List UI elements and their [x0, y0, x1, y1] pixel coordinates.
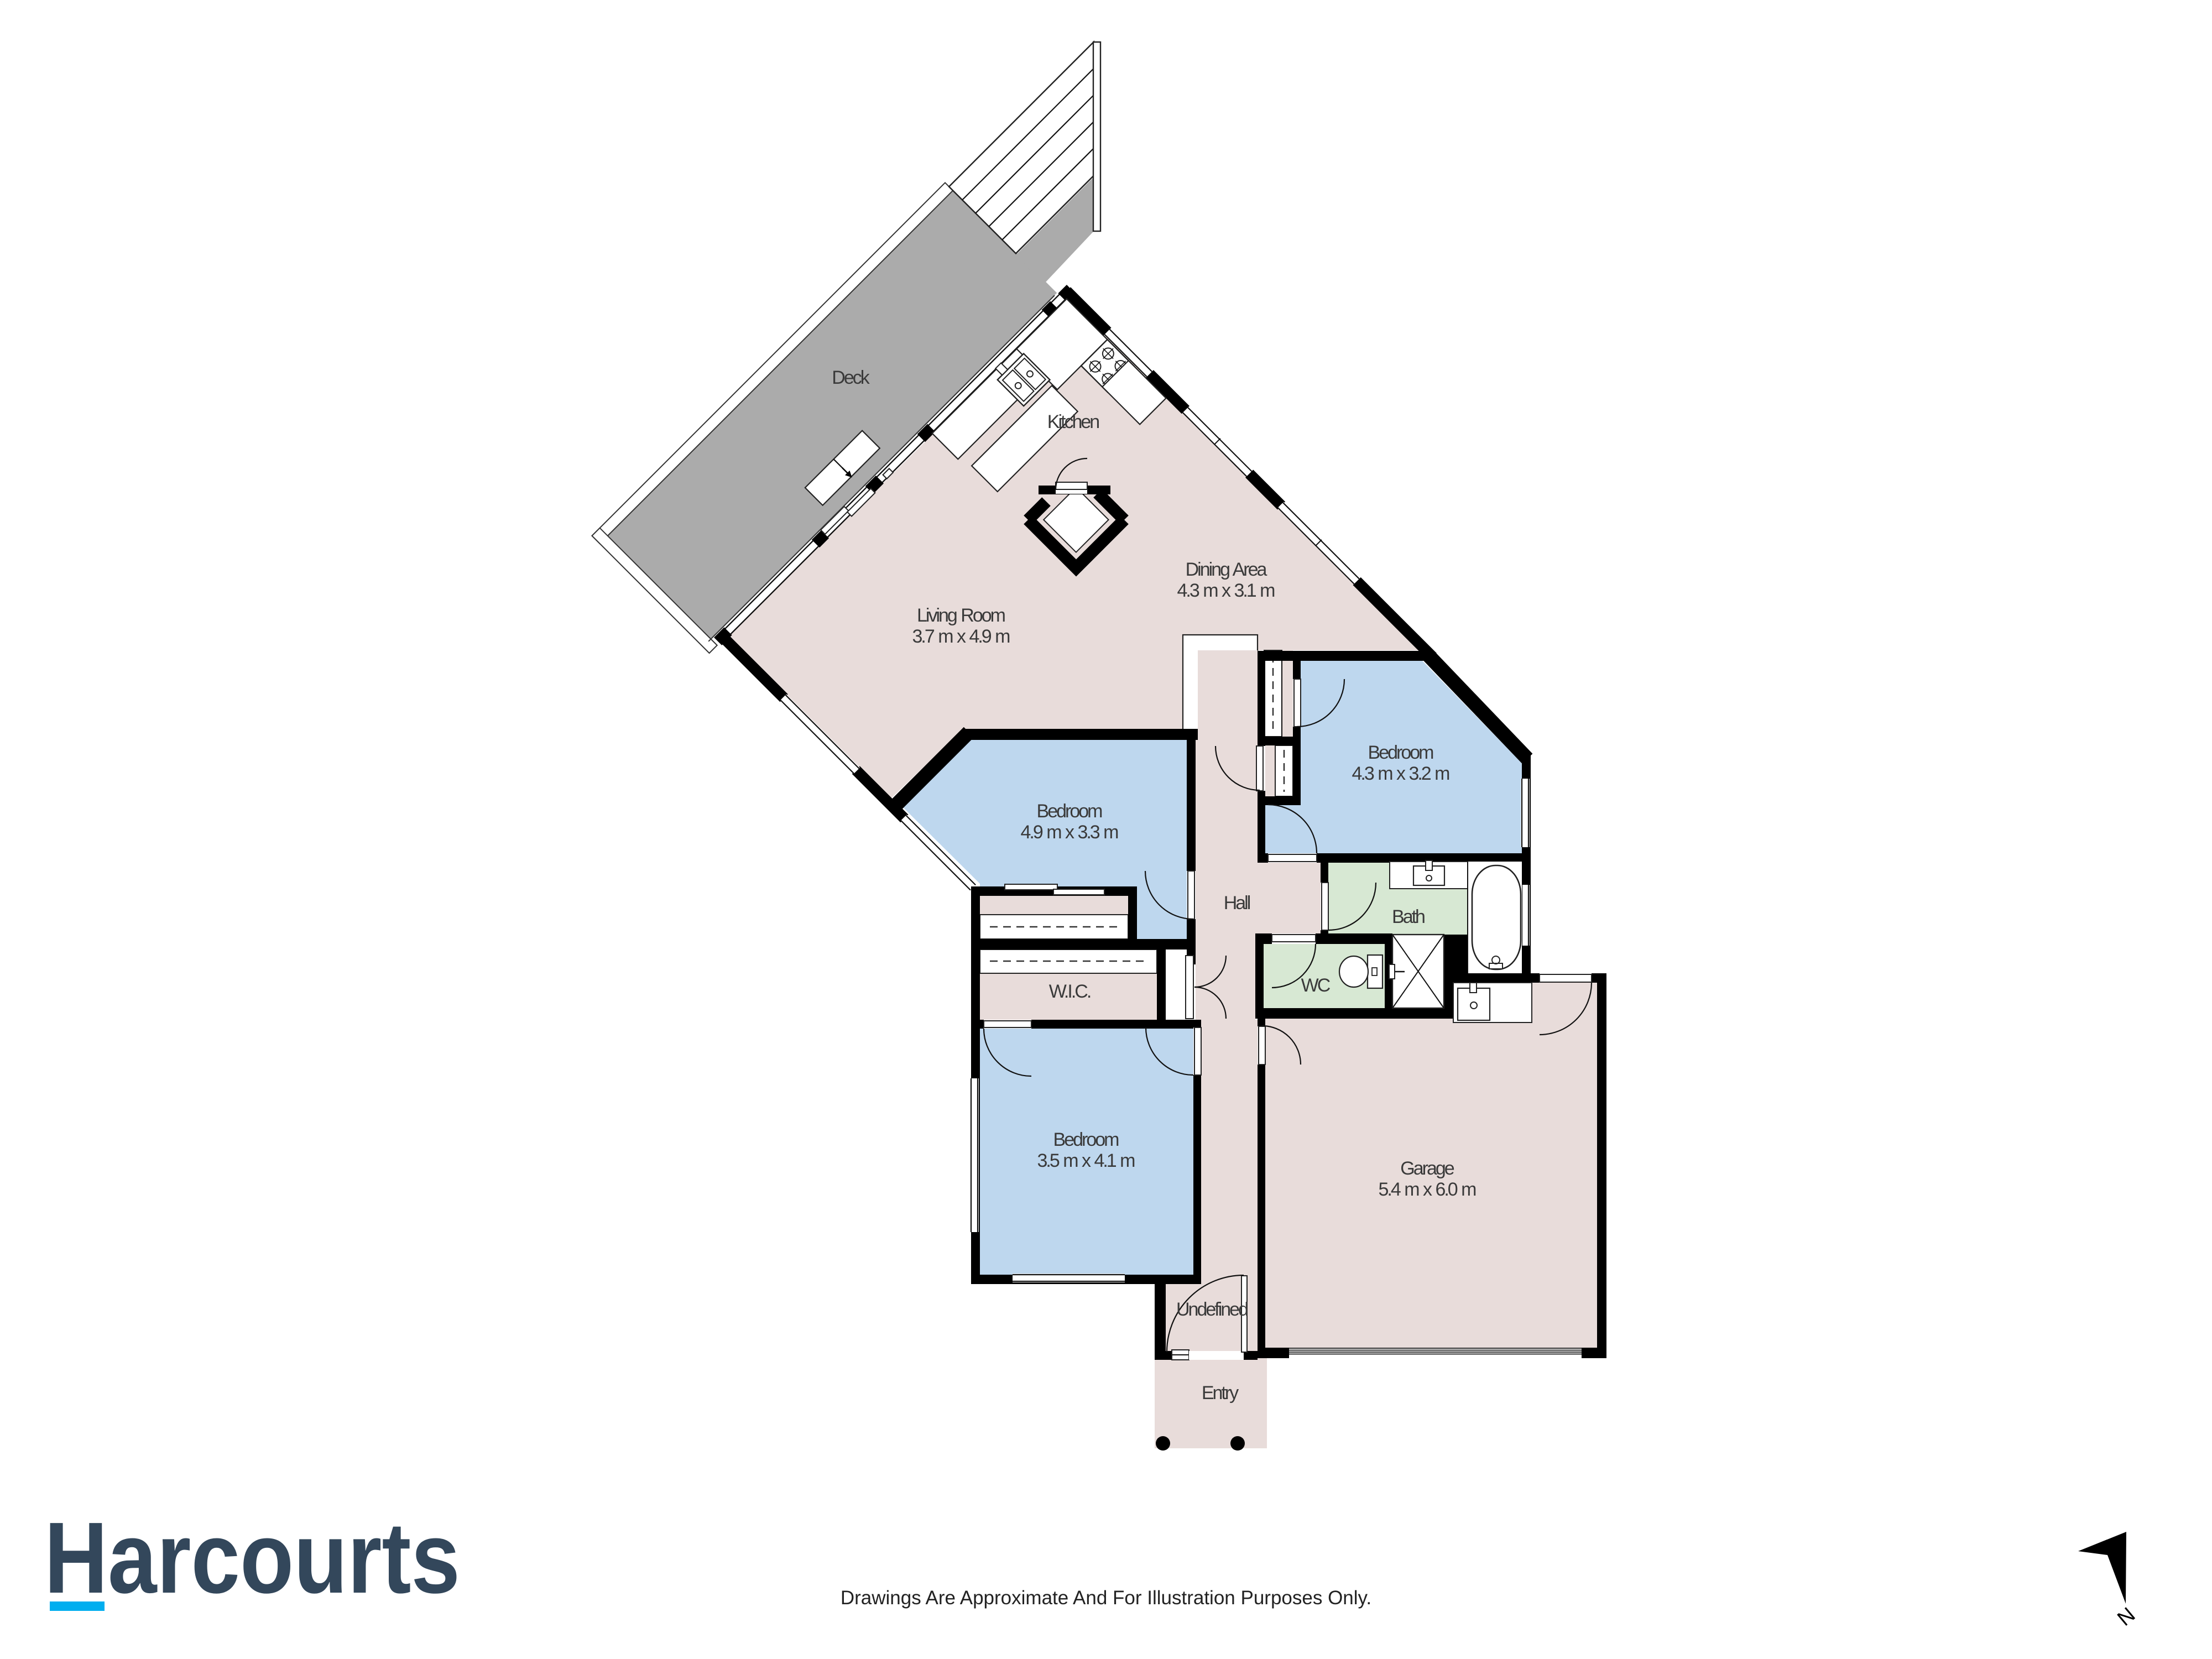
svg-text:3.5 m x 4.1 m: 3.5 m x 4.1 m: [1037, 1150, 1135, 1171]
svg-text:Deck: Deck: [832, 367, 870, 388]
svg-text:Hall: Hall: [1224, 893, 1250, 914]
svg-text:Drawings Are Approximate And F: Drawings Are Approximate And For Illustr…: [841, 1587, 1371, 1609]
svg-text:4.3 m x 3.2 m: 4.3 m x 3.2 m: [1352, 763, 1450, 784]
svg-text:WC: WC: [1301, 975, 1331, 996]
svg-text:Bedroom: Bedroom: [1037, 801, 1103, 822]
svg-text:Harcourts: Harcourts: [44, 1502, 460, 1615]
svg-text:4.3 m x 3.1 m: 4.3 m x 3.1 m: [1177, 580, 1275, 601]
svg-text:3.7 m x 4.9 m: 3.7 m x 4.9 m: [912, 626, 1010, 647]
svg-text:Kitchen: Kitchen: [1047, 411, 1099, 432]
svg-text:Bath: Bath: [1392, 906, 1425, 927]
svg-text:Living Room: Living Room: [917, 605, 1005, 626]
svg-text:Bedroom: Bedroom: [1053, 1129, 1119, 1150]
svg-text:Dining Area: Dining Area: [1186, 559, 1267, 580]
svg-text:Undefined: Undefined: [1176, 1299, 1248, 1320]
svg-text:Bedroom: Bedroom: [1368, 742, 1434, 763]
svg-text:4.9 m x 3.3 m: 4.9 m x 3.3 m: [1021, 822, 1119, 843]
svg-text:5.4 m x 6.0 m: 5.4 m x 6.0 m: [1379, 1179, 1477, 1200]
svg-text:W.I.C.: W.I.C.: [1049, 981, 1091, 1002]
svg-text:Garage: Garage: [1400, 1158, 1454, 1179]
svg-text:Entry: Entry: [1202, 1383, 1239, 1404]
